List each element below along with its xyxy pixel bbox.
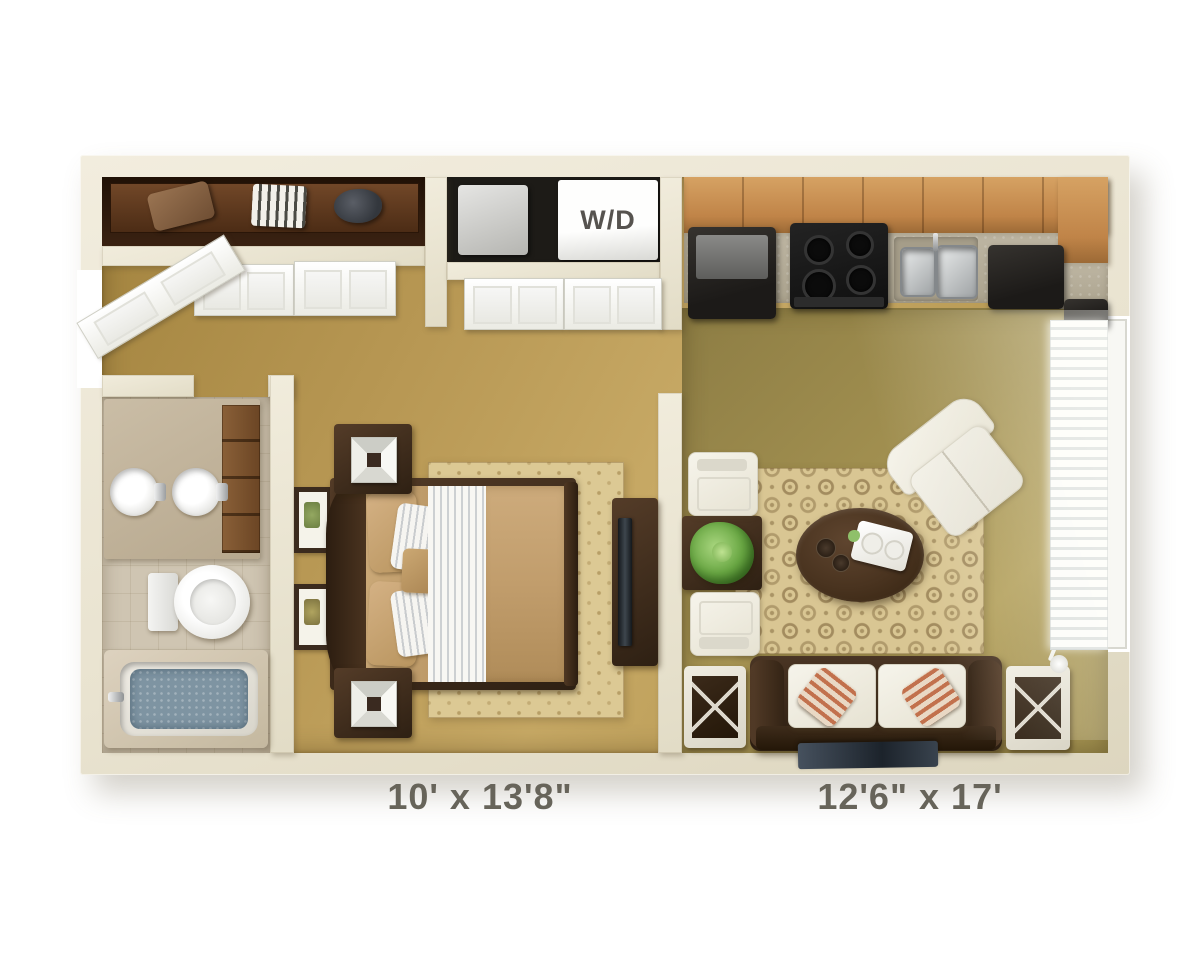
bedroom-living-divider-wall <box>658 393 682 753</box>
window-blinds <box>1050 320 1108 650</box>
end-table <box>1006 666 1070 750</box>
dining-chair <box>690 592 760 656</box>
bed-sheet-striped <box>428 486 486 682</box>
washer-dryer-unit: W/D <box>558 180 658 260</box>
kitchen-upper-cabinets <box>684 177 1108 233</box>
kitchen-corner-cabinet <box>1058 177 1108 263</box>
kitchen-faucet <box>933 233 938 251</box>
bathroom-sink-right <box>172 468 220 516</box>
interior-wall-column-left <box>425 177 447 327</box>
sofa <box>750 656 1002 751</box>
table-lamp <box>351 437 397 483</box>
oven-front <box>794 297 884 307</box>
interior-wall-column-right <box>660 177 682 330</box>
apartment-interior: W/D <box>102 177 1108 753</box>
dining-chair <box>688 452 758 516</box>
bifold-closet-door <box>564 278 662 330</box>
bed-comforter <box>486 486 574 682</box>
stove-burner <box>846 231 874 259</box>
bifold-closet-door <box>464 278 564 330</box>
toilet <box>148 563 254 641</box>
end-table <box>684 666 746 748</box>
sink-bowl-left <box>900 247 936 297</box>
serving-tray <box>850 520 914 572</box>
bathtub-faucet <box>108 692 124 702</box>
bathtub <box>104 650 268 748</box>
water-heater <box>458 185 528 255</box>
potted-plant <box>690 522 754 584</box>
bathtub-water <box>130 669 248 729</box>
dishwasher <box>988 245 1064 309</box>
sink-bowl-right <box>936 245 978 299</box>
vanity-cabinet-drawers <box>222 405 260 553</box>
bathroom-wall-top-left <box>102 375 194 397</box>
bathroom-sink-left <box>110 468 158 516</box>
toilet-seat <box>190 579 236 625</box>
coffee-table <box>796 508 924 602</box>
floorplan-canvas: W/D <box>0 0 1200 960</box>
bathroom-wall-right <box>270 375 294 753</box>
bed-footboard <box>564 482 578 686</box>
stove <box>790 223 888 309</box>
bathroom-vanity <box>104 399 260 559</box>
stove-burner <box>804 235 834 265</box>
floor-lamp-base <box>1050 655 1068 673</box>
table-lamp <box>351 681 397 727</box>
striped-hat-box <box>251 184 307 229</box>
refrigerator-top-panel <box>696 235 768 279</box>
refrigerator <box>688 227 776 319</box>
sliding-closet-door <box>294 261 396 316</box>
television <box>618 518 632 646</box>
apartment-outline: W/D <box>80 155 1130 775</box>
stove-burner <box>846 265 876 295</box>
living-room-dimension-label: 12'6" x 17' <box>750 776 1070 818</box>
coffee-cup <box>816 538 836 558</box>
wall-tv-panel <box>798 741 938 769</box>
kitchen-sink <box>894 237 978 301</box>
coffee-cup <box>832 554 850 572</box>
sink-faucet <box>216 483 228 501</box>
hat <box>334 189 382 223</box>
sink-faucet <box>154 483 166 501</box>
bedroom-dimension-label: 10' x 13'8" <box>320 776 640 818</box>
